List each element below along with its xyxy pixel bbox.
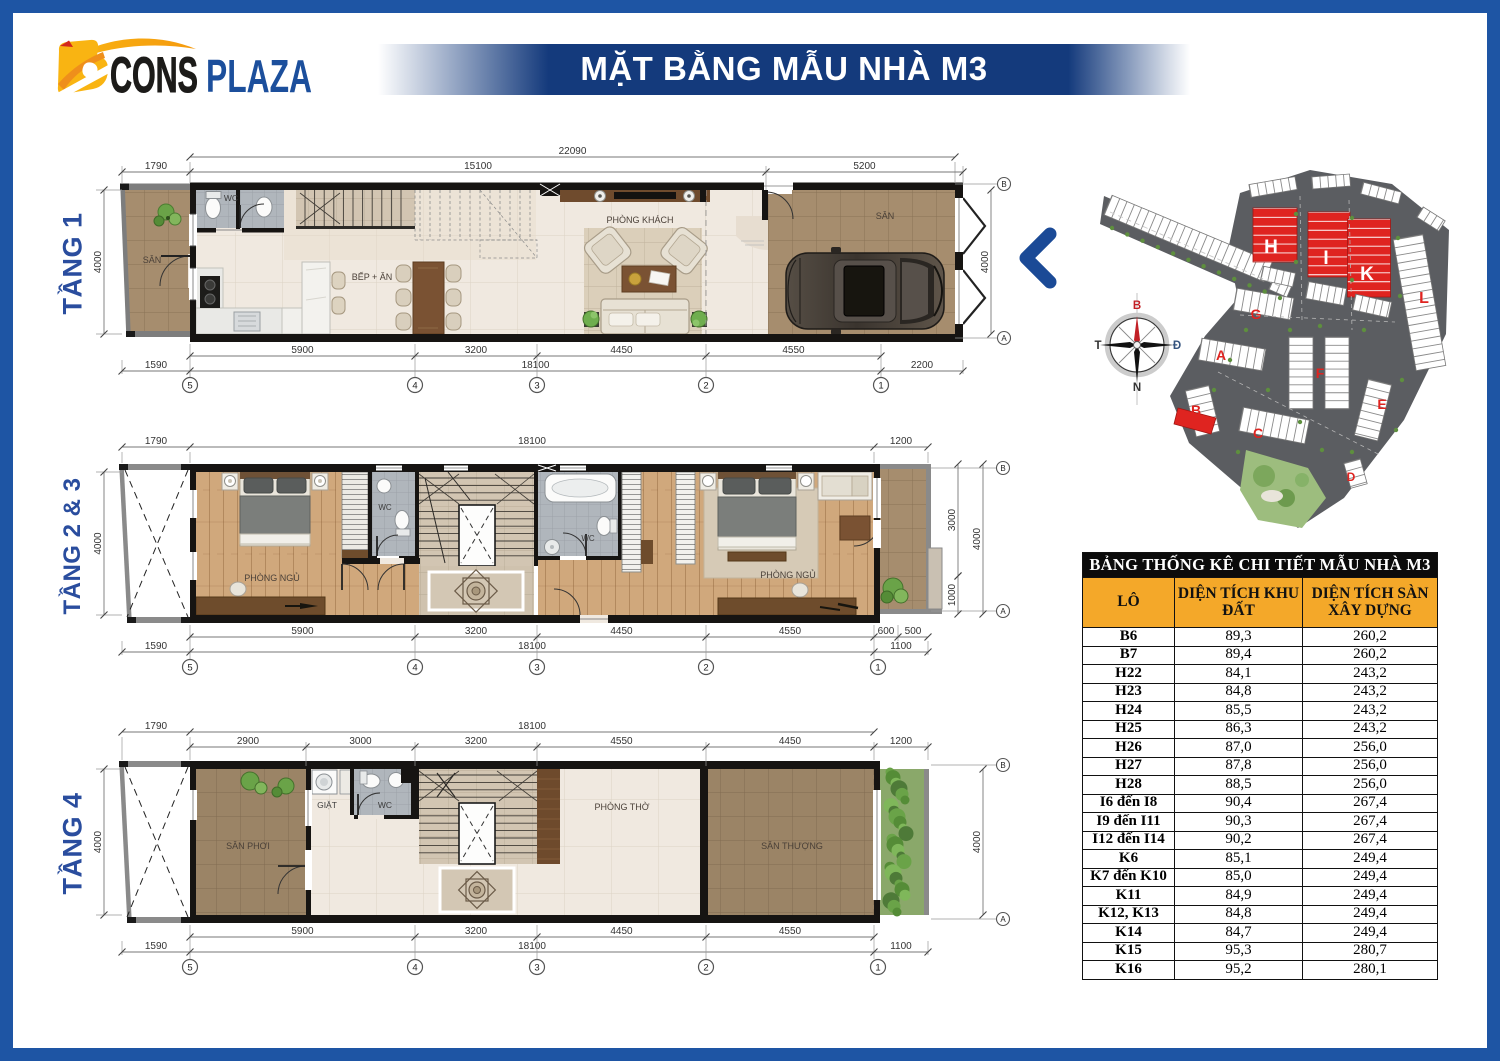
svg-text:600: 600 [878,626,895,637]
svg-text:T: T [1094,340,1101,352]
svg-text:1790: 1790 [145,436,168,447]
svg-text:4450: 4450 [610,926,633,937]
svg-text:1: 1 [878,381,883,392]
svg-text:4000: 4000 [980,250,991,273]
svg-text:B: B [1133,300,1141,312]
svg-text:4000: 4000 [93,532,104,555]
svg-text:4450: 4450 [779,736,802,747]
svg-text:2: 2 [703,381,708,392]
svg-text:1200: 1200 [890,736,913,747]
svg-text:CONS: CONS [110,47,198,100]
svg-text:A: A [1000,607,1006,616]
svg-text:F: F [1316,365,1325,381]
svg-text:15100: 15100 [464,161,492,172]
svg-text:B: B [1191,402,1201,418]
svg-text:1590: 1590 [145,941,168,952]
svg-text:WC: WC [378,800,392,810]
svg-text:4000: 4000 [972,527,983,550]
svg-text:3200: 3200 [465,626,488,637]
svg-text:3: 3 [534,663,539,674]
svg-text:BẾP + ĂN: BẾP + ĂN [352,272,393,282]
svg-text:B: B [1000,761,1005,770]
svg-text:1790: 1790 [145,161,168,172]
svg-text:5: 5 [187,663,192,674]
svg-text:A: A [1000,915,1006,924]
svg-text:SÂN PHƠI: SÂN PHƠI [226,841,270,851]
svg-text:5900: 5900 [291,345,314,356]
svg-text:G: G [1251,306,1262,322]
svg-text:2900: 2900 [237,736,260,747]
svg-text:K: K [1360,264,1374,285]
svg-text:18100: 18100 [518,436,546,447]
svg-text:1200: 1200 [890,436,913,447]
svg-text:4550: 4550 [779,626,802,637]
svg-text:3200: 3200 [465,736,488,747]
svg-text:1590: 1590 [145,641,168,652]
svg-text:WC: WC [378,503,392,512]
svg-text:E: E [1377,396,1386,412]
svg-text:3000: 3000 [947,508,958,531]
svg-text:4000: 4000 [972,830,983,853]
svg-text:1590: 1590 [145,360,168,371]
svg-text:1100: 1100 [890,941,912,952]
svg-text:4000: 4000 [93,250,104,273]
svg-text:4: 4 [412,963,417,974]
svg-text:22090: 22090 [559,146,587,157]
svg-text:SÂN THƯỢNG: SÂN THƯỢNG [761,841,823,851]
svg-text:A: A [1216,347,1226,363]
svg-text:5: 5 [187,963,192,974]
svg-text:1100: 1100 [890,641,912,652]
svg-text:PHÒNG NGỦ: PHÒNG NGỦ [760,569,816,580]
svg-text:3: 3 [534,381,539,392]
svg-text:2: 2 [703,963,708,974]
svg-text:4550: 4550 [610,736,633,747]
svg-text:PHÒNG NGỦ: PHÒNG NGỦ [244,572,300,583]
svg-text:4450: 4450 [610,626,633,637]
svg-text:500: 500 [905,626,922,637]
svg-text:5900: 5900 [291,626,314,637]
svg-text:Đ: Đ [1173,340,1181,352]
svg-text:5: 5 [187,381,192,392]
svg-text:1: 1 [875,963,880,974]
svg-text:18100: 18100 [518,941,546,952]
svg-text:L: L [1419,290,1429,307]
svg-text:18100: 18100 [522,360,550,371]
svg-text:4: 4 [412,663,417,674]
svg-text:PLAZA: PLAZA [206,50,312,100]
svg-text:WC: WC [224,193,238,203]
svg-text:2200: 2200 [911,360,934,371]
svg-text:D: D [1347,470,1356,484]
svg-text:I: I [1323,248,1328,269]
svg-text:5200: 5200 [853,161,876,172]
svg-text:C: C [1253,425,1263,441]
svg-text:PHÒNG KHÁCH: PHÒNG KHÁCH [606,215,673,225]
svg-text:4: 4 [412,381,417,392]
svg-text:PHÒNG THỜ: PHÒNG THỜ [594,802,649,812]
svg-text:18100: 18100 [518,721,546,732]
svg-text:3200: 3200 [465,926,488,937]
svg-text:WC: WC [581,534,595,543]
svg-text:3200: 3200 [465,345,488,356]
svg-text:18100: 18100 [518,641,546,652]
svg-text:5900: 5900 [291,926,314,937]
svg-text:GIẶT: GIẶT [317,800,337,810]
svg-text:2: 2 [703,663,708,674]
svg-text:4450: 4450 [610,345,633,356]
svg-text:SÂN: SÂN [876,211,895,221]
svg-text:SÂN: SÂN [143,255,162,265]
svg-text:H: H [1264,237,1278,258]
svg-text:4550: 4550 [782,345,805,356]
svg-text:1000: 1000 [947,583,958,606]
svg-text:3000: 3000 [349,736,372,747]
svg-text:1: 1 [875,663,880,674]
svg-text:4550: 4550 [779,926,802,937]
svg-text:1790: 1790 [145,721,168,732]
svg-text:3: 3 [534,963,539,974]
svg-text:4000: 4000 [93,830,104,853]
svg-text:N: N [1133,382,1141,394]
